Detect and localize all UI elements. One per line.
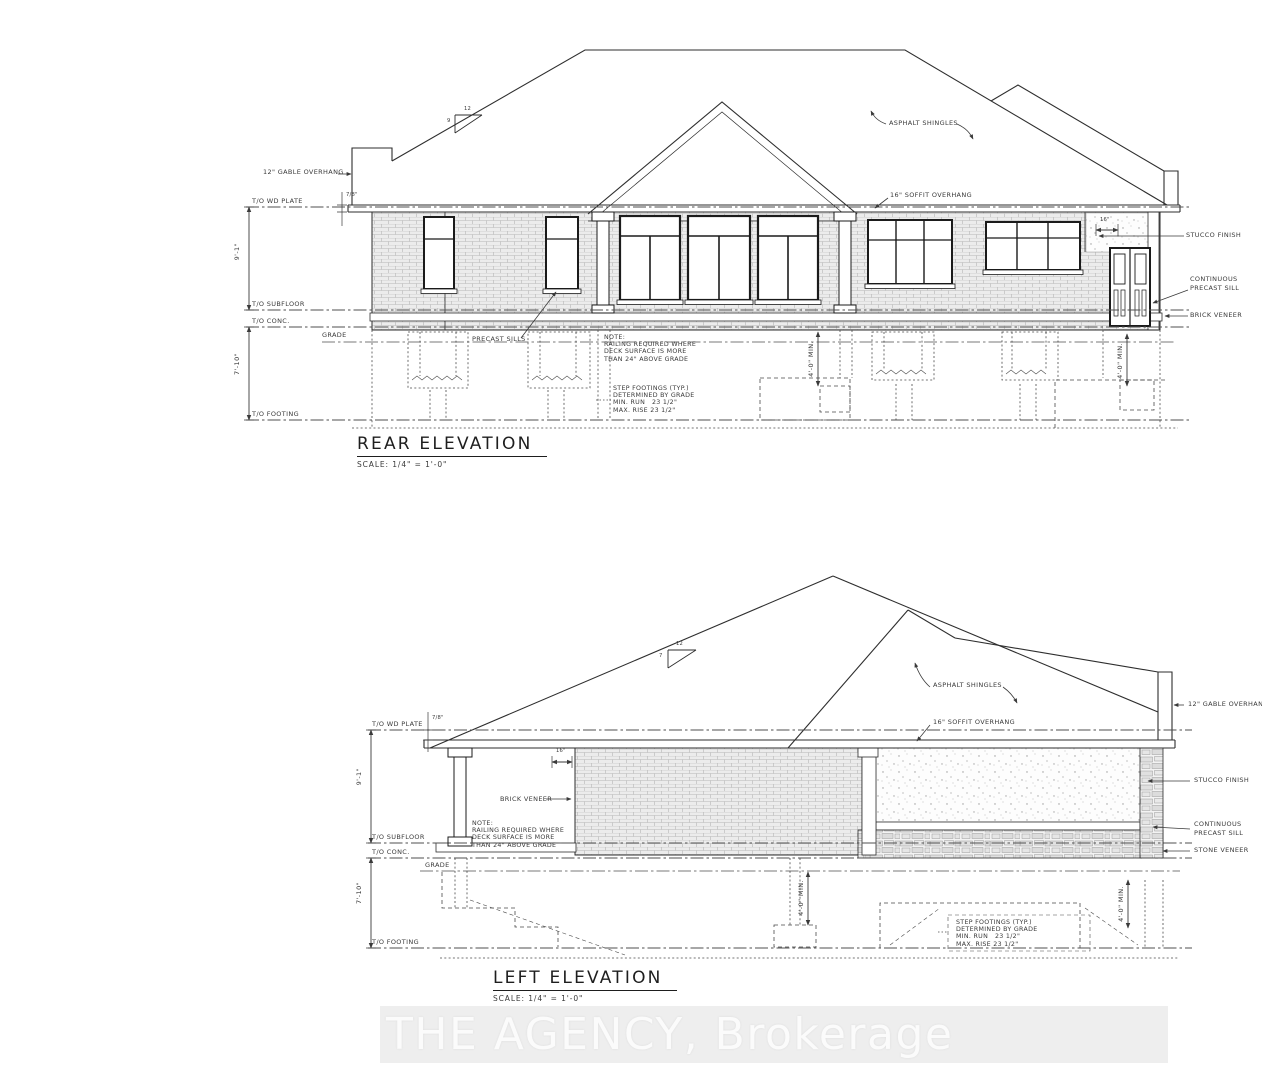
note-line: DECK SURFACE IS MORE xyxy=(604,348,696,355)
note-line: MIN. RUN 23 1/2" xyxy=(613,399,695,406)
rear-railing-note: NOTE: RAILING REQUIRED WHERE DECK SURFAC… xyxy=(604,334,696,363)
left-porch-post xyxy=(448,748,472,846)
rear-door xyxy=(1104,248,1158,330)
left-step-footings-note: STEP FOOTINGS (TYP.) DETERMINED BY GRADE… xyxy=(956,919,1038,948)
note-line: MAX. RISE 23 1/2" xyxy=(613,407,695,414)
left-dim-min-depth-mid: 4'-0" MIN. xyxy=(798,880,805,916)
rear-dim-stucco-width: 16" xyxy=(1100,218,1110,223)
left-level-subfloor: T/O SUBFLOOR xyxy=(372,834,425,841)
rear-pitch-marker xyxy=(455,115,482,133)
rear-dim-min-depth-right: 4'-0" MIN. xyxy=(1117,343,1124,379)
left-foundation-dashed xyxy=(440,858,1178,958)
left-pitch-run: 12 xyxy=(676,642,683,647)
note-line: THAN 24" ABOVE GRADE xyxy=(604,356,696,363)
rear-precast-sills-callout: PRECAST SILLS xyxy=(472,336,526,343)
left-roof xyxy=(424,576,1175,748)
left-dim-wall-height: 9'-1" xyxy=(356,768,363,785)
note-line: STEP FOOTINGS (TYP.) xyxy=(613,385,695,392)
rear-soffit-overhang-callout: 16" SOFFIT OVERHANG xyxy=(890,192,972,199)
rear-level-subfloor: T/O SUBFLOOR xyxy=(252,301,305,308)
left-brick-veneer-callout: BRICK VENEER xyxy=(500,796,552,803)
note-line: DETERMINED BY GRADE xyxy=(956,926,1038,933)
rear-brick-veneer-callout: BRICK VENEER xyxy=(1190,312,1242,319)
note-line: MAX. RISE 23 1/2" xyxy=(956,941,1038,948)
left-level-grade: GRADE xyxy=(425,862,450,869)
rear-asphalt-shingles-callout: ASPHALT SHINGLES xyxy=(889,120,958,127)
rear-dim-foundation-height: 7'-10" xyxy=(234,353,241,375)
left-dim-min-depth-right: 4'-0" MIN. xyxy=(1118,886,1125,922)
rear-gable-overhang-callout: 12" GABLE OVERHANG xyxy=(263,169,344,176)
rear-level-grade: GRADE xyxy=(322,332,347,339)
rear-dim-min-depth: 4'-0" MIN. xyxy=(808,341,815,377)
rear-elevation-title: REAR ELEVATION xyxy=(357,434,547,457)
left-dim-plate-offset: 7/8" xyxy=(432,716,444,721)
rear-pitch-rise: 9 xyxy=(447,119,451,124)
note-line: RAILING REQUIRED WHERE xyxy=(604,341,696,348)
rear-foundation-dashed xyxy=(352,330,1178,428)
rear-level-plate: T/O WD PLATE xyxy=(252,198,303,205)
left-gable-overhang-callout: 12" GABLE OVERHANG xyxy=(1188,701,1262,708)
left-precast-sill-callout-1: CONTINUOUS xyxy=(1194,821,1242,828)
brokerage-watermark: THE AGENCY, Brokerage xyxy=(380,1006,1168,1063)
rear-precast-sill-callout-2: PRECAST SILL xyxy=(1190,285,1239,292)
left-pitch-rise: 7 xyxy=(659,654,663,659)
note-line: THAN 24" ABOVE GRADE xyxy=(472,842,564,849)
rear-step-footings-note: STEP FOOTINGS (TYP.) DETERMINED BY GRADE… xyxy=(613,385,695,414)
left-asphalt-shingles-callout: ASPHALT SHINGLES xyxy=(933,682,1002,689)
left-stone-veneer-callout: STONE VENEER xyxy=(1194,847,1249,854)
note-line: DECK SURFACE IS MORE xyxy=(472,834,564,841)
note-line: NOTE: xyxy=(472,820,564,827)
note-line: NOTE: xyxy=(604,334,696,341)
left-stucco-finish-callout: STUCCO FINISH xyxy=(1194,777,1249,784)
left-elevation-title: LEFT ELEVATION xyxy=(493,968,677,991)
elevation-linework xyxy=(0,0,1262,1083)
note-line: DETERMINED BY GRADE xyxy=(613,392,695,399)
left-dim-soffit-depth: 16" xyxy=(556,749,566,754)
rear-pitch-run: 12 xyxy=(464,107,471,112)
rear-stucco-finish-callout: STUCCO FINISH xyxy=(1186,232,1241,239)
left-pitch-marker xyxy=(668,650,696,668)
note-line: STEP FOOTINGS (TYP.) xyxy=(956,919,1038,926)
rear-dim-plate-offset: 7/8" xyxy=(346,193,358,198)
left-soffit-overhang-callout: 16" SOFFIT OVERHANG xyxy=(933,719,1015,726)
left-level-conc: T/O CONC. xyxy=(372,849,410,856)
rear-precast-sill-callout-1: CONTINUOUS xyxy=(1190,276,1238,283)
rear-roof xyxy=(348,50,1180,221)
left-level-footing: T/O FOOTING xyxy=(372,939,419,946)
rear-level-footing: T/O FOOTING xyxy=(252,411,299,418)
left-railing-note: NOTE: RAILING REQUIRED WHERE DECK SURFAC… xyxy=(472,820,564,849)
left-elevation-scale: SCALE: 1/4" = 1'-0" xyxy=(493,994,583,1003)
rear-dim-wall-height: 9'-1" xyxy=(234,243,241,260)
left-dim-foundation-height: 7'-10" xyxy=(356,882,363,904)
left-precast-sill-callout-2: PRECAST SILL xyxy=(1194,830,1243,837)
rear-level-conc: T/O CONC. xyxy=(252,318,290,325)
note-line: MIN. RUN 23 1/2" xyxy=(956,933,1038,940)
rear-elevation-scale: SCALE: 1/4" = 1'-0" xyxy=(357,460,447,469)
note-line: RAILING REQUIRED WHERE xyxy=(472,827,564,834)
drawing-sheet: 12" GABLE OVERHANG T/O WD PLATE T/O SUBF… xyxy=(0,0,1262,1083)
left-level-plate: T/O WD PLATE xyxy=(372,721,423,728)
